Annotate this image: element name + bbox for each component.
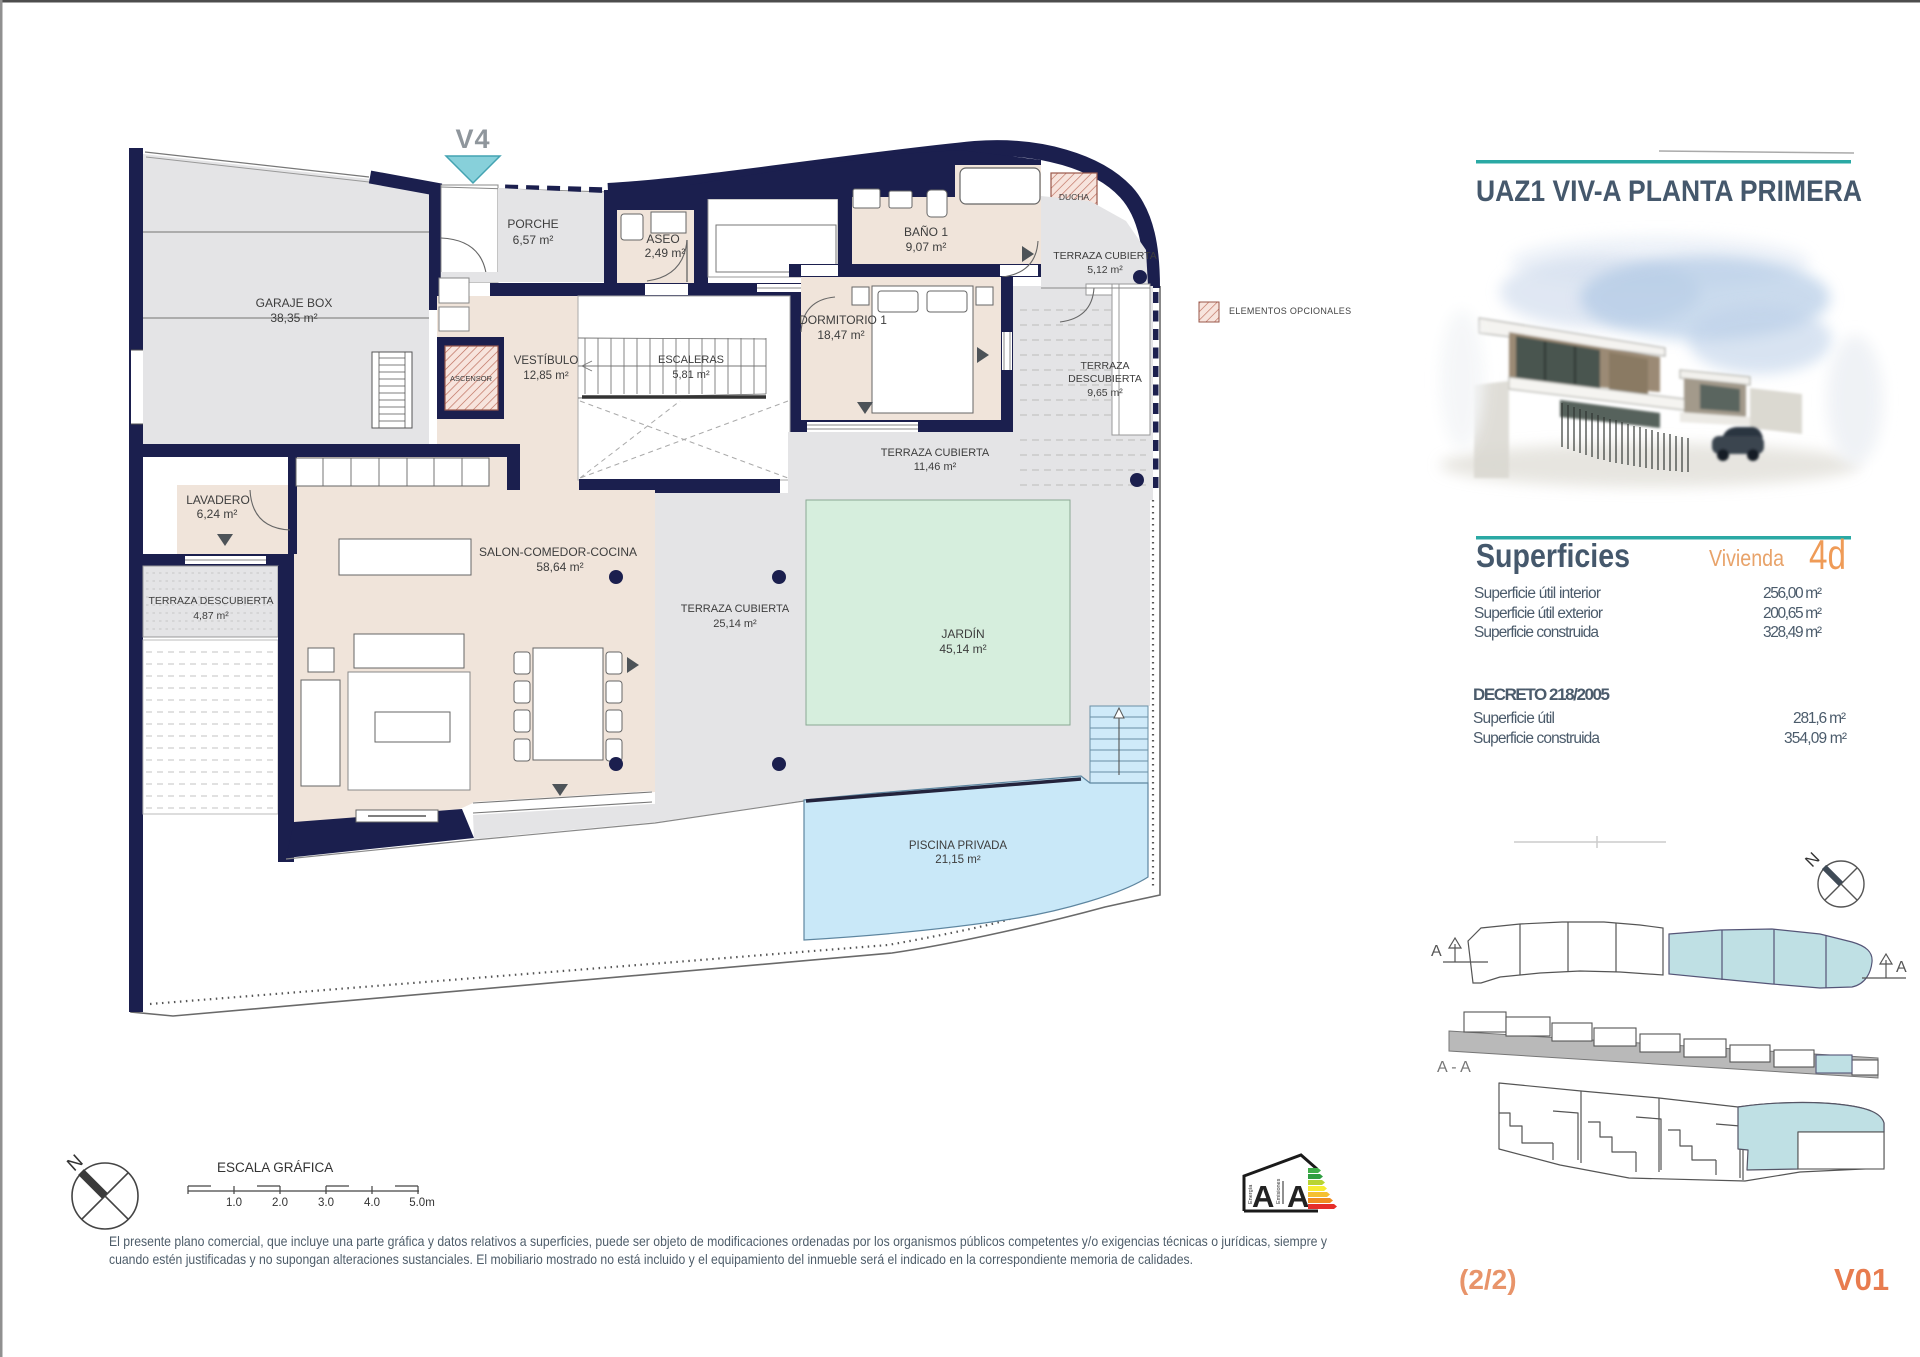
svg-text:6,24 m²: 6,24 m²	[197, 507, 238, 521]
svg-text:PISCINA PRIVADA: PISCINA PRIVADA	[909, 840, 1008, 852]
svg-text:Emisiones: Emisiones	[1276, 1178, 1282, 1204]
svg-text:18,47 m²: 18,47 m²	[817, 328, 864, 342]
svg-text:cuando estén justificadas y no: cuando estén justificadas y no supongan …	[109, 1251, 1193, 1267]
svg-text:V01: V01	[1834, 1262, 1889, 1297]
svg-text:21,15 m²: 21,15 m²	[935, 854, 981, 866]
svg-text:ASEO: ASEO	[646, 232, 679, 246]
svg-text:281,6 m²: 281,6 m²	[1793, 710, 1846, 727]
svg-text:UAZ1 VIV-A PLANTA PRIMERA: UAZ1 VIV-A PLANTA PRIMERA	[1476, 175, 1862, 208]
svg-text:Superficie útil exterior: Superficie útil exterior	[1474, 605, 1603, 622]
svg-text:Superficie construida: Superficie construida	[1473, 730, 1600, 747]
svg-text:ESCALERAS: ESCALERAS	[658, 354, 724, 366]
svg-text:6,57 m²: 6,57 m²	[513, 233, 554, 247]
svg-text:200,65 m²: 200,65 m²	[1763, 605, 1822, 622]
svg-text:4.0: 4.0	[364, 1197, 380, 1209]
svg-text:5,81 m²: 5,81 m²	[672, 369, 710, 381]
svg-text:11,46 m²: 11,46 m²	[914, 461, 957, 473]
svg-text:5.0m: 5.0m	[409, 1197, 435, 1209]
svg-text:A: A	[1287, 1179, 1309, 1214]
svg-text:VESTÍBULO: VESTÍBULO	[514, 354, 579, 367]
svg-text:Energía: Energía	[1248, 1184, 1254, 1204]
svg-text:328,49 m²: 328,49 m²	[1763, 624, 1822, 641]
svg-text:DORMITORIO 1: DORMITORIO 1	[799, 313, 887, 327]
svg-text:2,49 m²: 2,49 m²	[645, 246, 686, 260]
svg-text:PORCHE: PORCHE	[507, 217, 558, 231]
svg-text:12,85 m²: 12,85 m²	[523, 370, 569, 382]
svg-text:TERRAZA CUBIERTA: TERRAZA CUBIERTA	[681, 603, 790, 615]
svg-text:5,12 m²: 5,12 m²	[1087, 264, 1123, 276]
svg-text:Superficie útil: Superficie útil	[1473, 710, 1555, 727]
svg-text:ASCENSOR: ASCENSOR	[450, 374, 493, 383]
svg-text:4d: 4d	[1809, 531, 1846, 578]
svg-text:TERRAZA CUBIERTA: TERRAZA CUBIERTA	[881, 447, 990, 459]
svg-text:2.0: 2.0	[272, 1197, 288, 1209]
svg-text:DESCUBIERTA: DESCUBIERTA	[1068, 373, 1142, 385]
svg-text:TERRAZA DESCUBIERTA: TERRAZA DESCUBIERTA	[148, 595, 273, 607]
svg-text:58,64 m²: 58,64 m²	[536, 560, 583, 574]
svg-text:ELEMENTOS OPCIONALES: ELEMENTOS OPCIONALES	[1229, 306, 1351, 316]
svg-text:V4: V4	[455, 124, 490, 154]
svg-text:N: N	[1801, 849, 1823, 871]
svg-text:256,00 m²: 256,00 m²	[1763, 585, 1822, 602]
svg-text:JARDÍN: JARDÍN	[941, 626, 984, 641]
svg-text:4,87 m²: 4,87 m²	[193, 610, 229, 622]
svg-text:El presente plano comercial, q: El presente plano comercial, que incluye…	[109, 1233, 1327, 1249]
svg-text:Superficies: Superficies	[1476, 537, 1630, 574]
svg-text:A: A	[1431, 943, 1442, 960]
svg-text:A: A	[1896, 959, 1907, 976]
svg-text:25,14 m²: 25,14 m²	[713, 618, 757, 630]
svg-text:45,14 m²: 45,14 m²	[939, 642, 986, 656]
svg-text:Superficie construida: Superficie construida	[1474, 624, 1599, 641]
svg-text:9,65 m²: 9,65 m²	[1087, 387, 1123, 399]
svg-text:SALON-COMEDOR-COCINA: SALON-COMEDOR-COCINA	[479, 545, 637, 559]
svg-text:Superficie útil interior: Superficie útil interior	[1474, 585, 1601, 602]
svg-text:LAVADERO: LAVADERO	[186, 493, 250, 507]
svg-text:A - A: A - A	[1437, 1059, 1471, 1076]
svg-text:Vivienda: Vivienda	[1709, 545, 1784, 571]
svg-text:ESCALA GRÁFICA: ESCALA GRÁFICA	[217, 1160, 333, 1175]
svg-text:BAÑO 1: BAÑO 1	[904, 225, 948, 239]
svg-text:9,07 m²: 9,07 m²	[906, 240, 947, 254]
svg-text:GARAJE BOX: GARAJE BOX	[256, 296, 333, 310]
svg-text:TERRAZA: TERRAZA	[1080, 360, 1129, 372]
svg-text:354,09 m²: 354,09 m²	[1784, 730, 1847, 747]
svg-text:DECRETO 218/2005: DECRETO 218/2005	[1473, 685, 1610, 704]
svg-text:1.0: 1.0	[226, 1197, 242, 1209]
svg-text:DUCHA: DUCHA	[1059, 192, 1090, 202]
svg-text:3.0: 3.0	[318, 1197, 334, 1209]
svg-text:TERRAZA CUBIERTA: TERRAZA CUBIERTA	[1053, 250, 1156, 262]
svg-text:(2/2): (2/2)	[1459, 1264, 1517, 1295]
svg-text:A: A	[1252, 1179, 1274, 1214]
svg-text:38,35 m²: 38,35 m²	[270, 311, 317, 325]
